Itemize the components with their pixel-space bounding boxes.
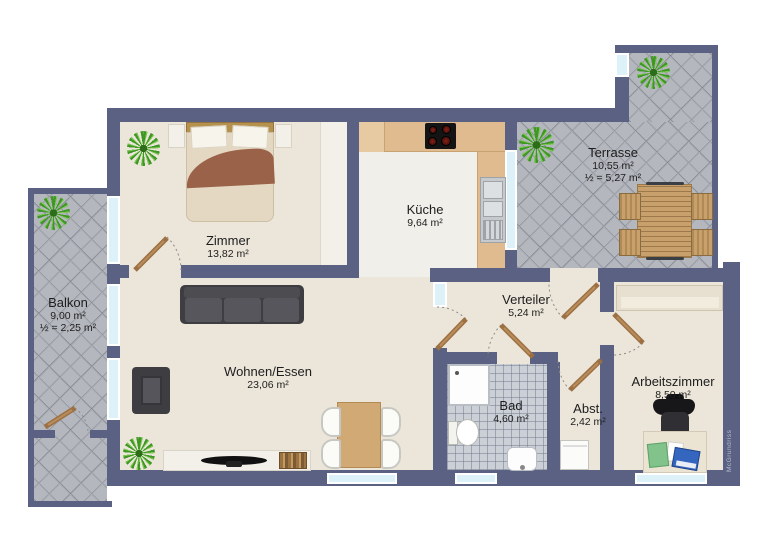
room-name: Terrasse (585, 146, 641, 160)
door-bathroom (488, 325, 533, 357)
room-area: 4,60 m² (493, 413, 529, 425)
room-area: 10,55 m² (585, 160, 641, 172)
room-label-arbeitszimmer: Arbeitszimmer 8,50 m² (631, 375, 714, 401)
door-swings-layer (0, 0, 768, 560)
door-storage (558, 360, 601, 390)
door-bedroom (135, 237, 181, 270)
room-area: 23,06 m² (224, 379, 312, 391)
room-area: 5,24 m² (502, 307, 550, 319)
room-name: Arbeitszimmer (631, 375, 714, 389)
room-name: Wohnen/Essen (224, 365, 312, 379)
room-half-area: ½ = 5,27 m² (585, 172, 641, 184)
watermark-text: McGrundriss (726, 436, 733, 472)
door-terrace (549, 284, 598, 318)
room-name: Abst. (570, 402, 606, 416)
door-balcony (45, 408, 88, 431)
room-half-area: ½ = 2,25 m² (40, 322, 96, 334)
room-label-balkon: Balkon 9,00 m² ½ = 2,25 m² (40, 296, 96, 334)
room-label-bad: Bad 4,60 m² (493, 399, 529, 425)
room-label-wohnen-essen: Wohnen/Essen 23,06 m² (224, 365, 312, 391)
room-area: 8,50 m² (631, 389, 714, 401)
room-name: Bad (493, 399, 529, 413)
floor-plan: Zimmer 13,82 m² Küche 9,64 m² Terrasse 1… (0, 0, 768, 560)
room-area: 9,00 m² (40, 310, 96, 322)
room-name: Küche (407, 203, 444, 217)
room-label-terrasse: Terrasse 10,55 m² ½ = 5,27 m² (585, 146, 641, 184)
room-area: 9,64 m² (407, 217, 444, 229)
room-label-zimmer: Zimmer 13,82 m² (206, 234, 250, 260)
room-name: Verteiler (502, 293, 550, 307)
room-area: 13,82 m² (206, 248, 250, 260)
door-living (435, 307, 466, 349)
room-label-kueche: Küche 9,64 m² (407, 203, 444, 229)
door-office (614, 314, 643, 355)
room-label-abstellraum: Abst. 2,42 m² (570, 402, 606, 428)
room-area: 2,42 m² (570, 416, 606, 428)
room-name: Zimmer (206, 234, 250, 248)
room-name: Balkon (40, 296, 96, 310)
room-label-verteiler: Verteiler 5,24 m² (502, 293, 550, 319)
